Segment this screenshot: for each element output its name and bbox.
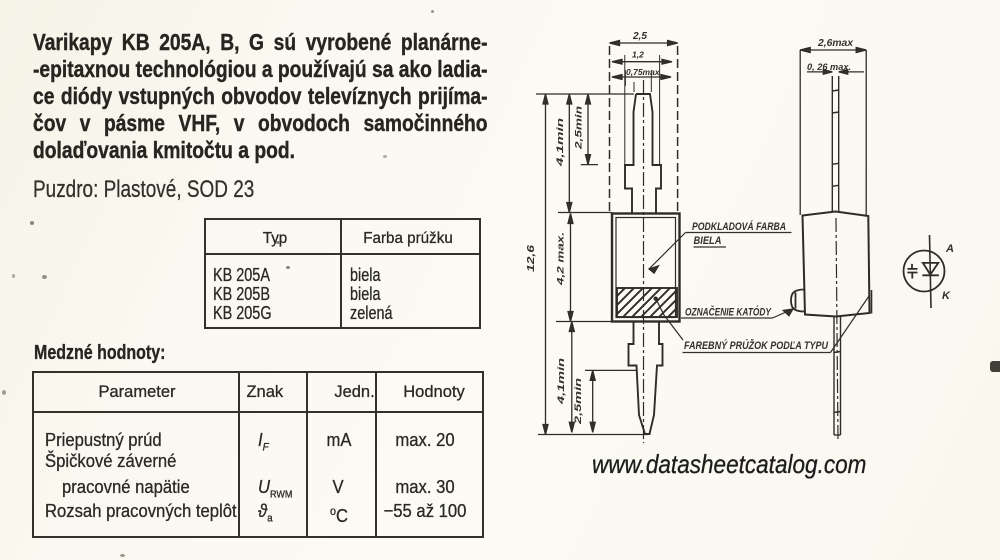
svg-text:2,5: 2,5 [632, 31, 647, 42]
svg-text:OZNAČENIE KATÓDY: OZNAČENIE KATÓDY [685, 306, 772, 319]
svg-text:K: K [942, 290, 951, 302]
svg-text:A: A [945, 243, 954, 255]
svg-text:0,75max: 0,75max [626, 67, 661, 77]
svg-text:FAREBNÝ PRÚŽOK PODĽA TYPU: FAREBNÝ PRÚŽOK PODĽA TYPU [684, 339, 829, 352]
svg-text:4,2 max.: 4,2 max. [556, 232, 567, 286]
svg-text:2,5min: 2,5min [574, 106, 585, 151]
svg-text:4,1min: 4,1min [555, 118, 566, 168]
svg-text:PODKLADOVÁ FARBA: PODKLADOVÁ FARBA [692, 220, 786, 233]
svg-text:0, 26 max.: 0, 26 max. [807, 62, 851, 72]
svg-text:BIELA: BIELA [694, 235, 722, 247]
svg-text:2,5min: 2,5min [573, 378, 584, 426]
svg-text:4,1min: 4,1min [556, 358, 567, 406]
svg-text:2,6max: 2,6max [817, 38, 853, 49]
svg-text:12,6: 12,6 [525, 245, 537, 272]
svg-text:1,2: 1,2 [632, 50, 644, 60]
